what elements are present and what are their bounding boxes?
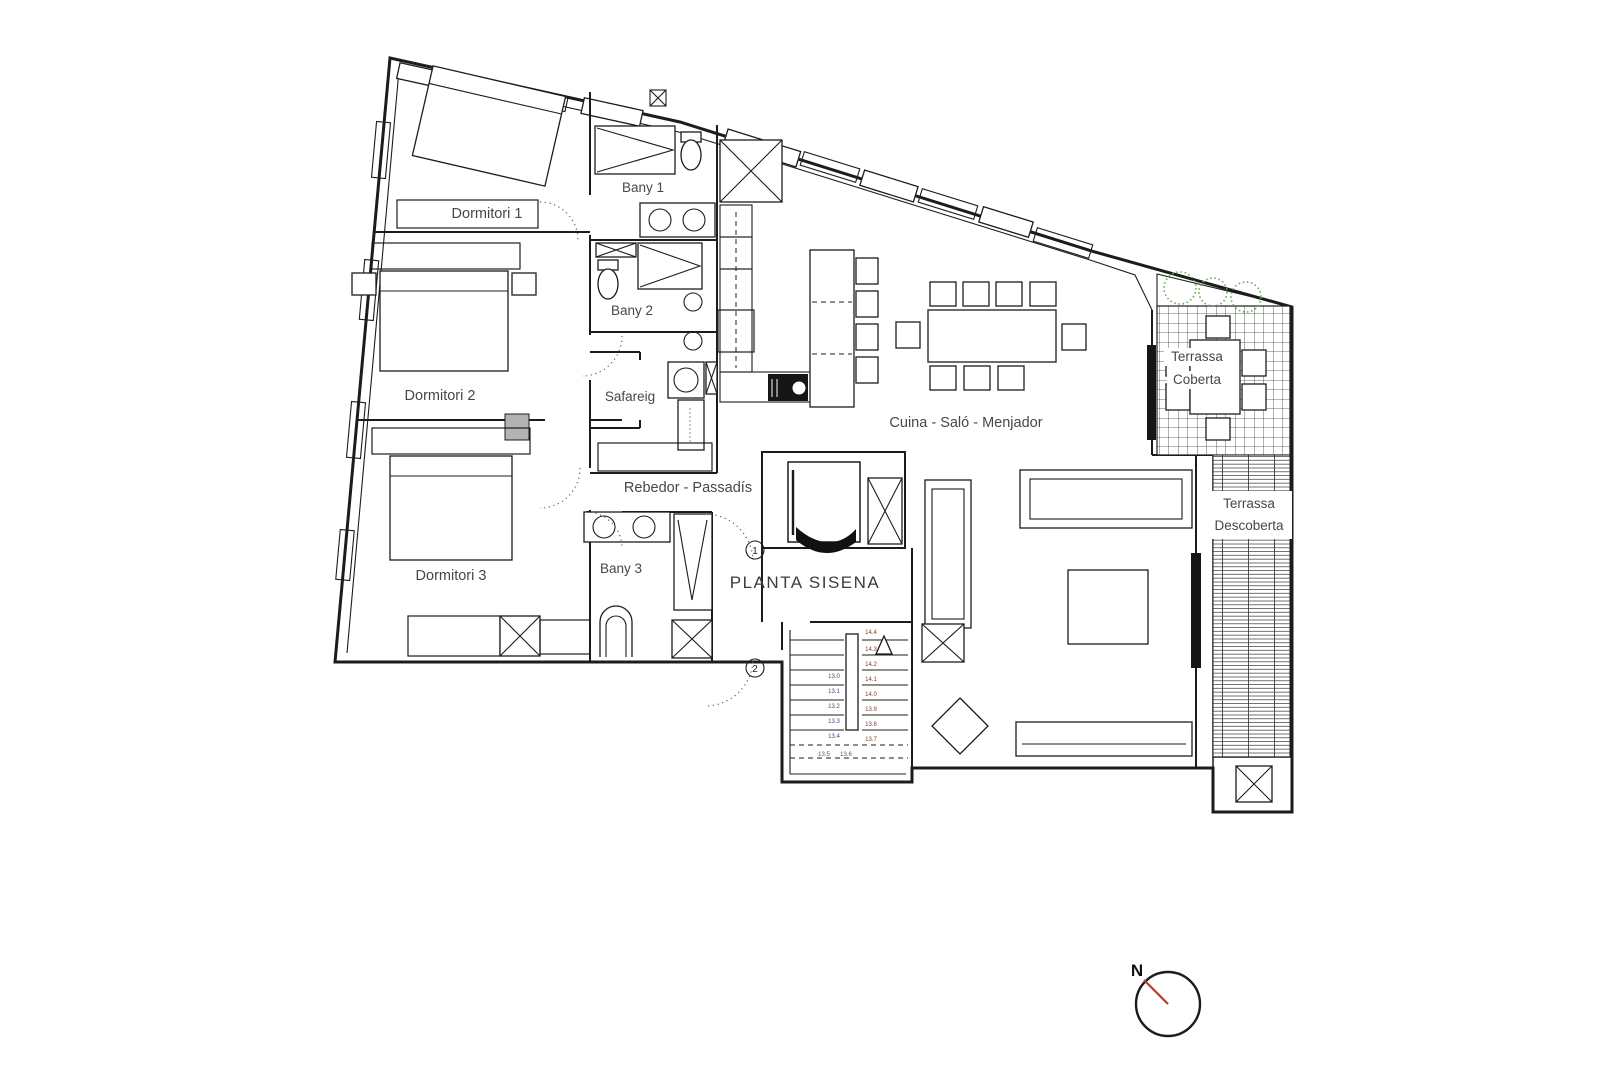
sofa-bottom xyxy=(1016,722,1192,756)
room-bany-1: Bany 1 xyxy=(595,126,782,237)
side-table xyxy=(932,698,988,754)
staircase: 14.4 14.3 14.2 14.1 14.0 13.9 13.8 13.7 … xyxy=(782,622,912,782)
column xyxy=(505,414,529,440)
planter xyxy=(1157,274,1290,306)
terrace-door-1 xyxy=(1147,345,1156,440)
stair-level: 13.6 xyxy=(840,752,852,758)
compass-north-label: N xyxy=(1131,961,1143,980)
shower-2 xyxy=(638,243,702,289)
toilet-3 xyxy=(600,606,632,657)
stair-level: 13.4 xyxy=(828,734,840,740)
bed-3 xyxy=(390,456,512,560)
floor-plan-page: Dormitori 1 Dormitori 2 Dormitori 3 Ba xyxy=(0,0,1600,1066)
label-terrassa-descoberta-1: Terrassa xyxy=(1223,496,1275,511)
stair-level: 13.8 xyxy=(865,722,877,728)
stair-level: 13.3 xyxy=(828,719,840,725)
stair-level: 13.1 xyxy=(828,689,840,695)
terrace-door-2 xyxy=(1191,553,1201,668)
stair-up-arrow xyxy=(876,636,892,654)
washer xyxy=(668,362,704,398)
stair-level: 14.2 xyxy=(865,662,877,668)
label-terrassa-coberta-1: Terrassa xyxy=(1171,349,1223,364)
entrance-2-number: 2 xyxy=(752,664,758,675)
compass-needle xyxy=(1144,980,1168,1004)
stair-level: 13.5 xyxy=(818,752,830,758)
stair-level: 14.3 xyxy=(865,647,877,653)
stair-level: 13.0 xyxy=(828,674,840,680)
terrassa-descoberta: Terrassa Descoberta xyxy=(1207,455,1292,802)
stair-level: 13.9 xyxy=(865,707,877,713)
toilet-2 xyxy=(598,269,618,299)
stair-level: 14.0 xyxy=(865,692,877,698)
shower-1 xyxy=(595,126,675,174)
kitchen xyxy=(718,205,878,407)
entrance-1-number: 1 xyxy=(752,546,758,557)
dining-area: Cuina - Saló - Menjador xyxy=(889,282,1086,431)
label-bany-2: Bany 2 xyxy=(611,303,653,318)
floor-title: PLANTA SISENA xyxy=(730,573,881,592)
vanity-1 xyxy=(640,203,715,237)
room-dormitori-3: Dormitori 3 xyxy=(372,428,590,656)
room-bany-2: Bany 2 xyxy=(596,243,702,350)
label-cuina-salo: Cuina - Saló - Menjador xyxy=(889,415,1042,431)
room-bany-3: Bany 3 xyxy=(584,512,712,658)
wardrobe-2 xyxy=(372,243,520,269)
label-rebedor: Rebedor - Passadís xyxy=(624,480,752,496)
compass-icon: N xyxy=(1131,961,1200,1036)
stair-level: 13.7 xyxy=(865,737,877,743)
toilet-1 xyxy=(681,140,701,170)
floor-plan-svg: Dormitori 1 Dormitori 2 Dormitori 3 Ba xyxy=(0,0,1600,1066)
label-bany-3: Bany 3 xyxy=(600,561,642,576)
label-terrassa-coberta-2: Coberta xyxy=(1173,372,1222,387)
wardrobe-3b xyxy=(408,616,500,656)
bush-icon xyxy=(1199,278,1227,306)
label-dormitori-2: Dormitori 2 xyxy=(405,388,476,404)
label-dormitori-3: Dormitori 3 xyxy=(416,568,487,584)
label-bany-1: Bany 1 xyxy=(622,180,664,195)
room-dormitori-1: Dormitori 1 xyxy=(397,66,566,228)
room-dormitori-2: Dormitori 2 xyxy=(352,243,536,440)
bed-2 xyxy=(380,271,508,371)
stair-level: 14.1 xyxy=(865,677,877,683)
label-safareig: Safareig xyxy=(605,389,655,404)
bed-1 xyxy=(412,66,565,186)
label-terrassa-descoberta-2: Descoberta xyxy=(1214,518,1284,533)
dining-table xyxy=(928,310,1056,362)
elevator xyxy=(762,452,905,553)
island xyxy=(810,250,854,407)
coffee-table xyxy=(1068,570,1148,644)
stair-stringer xyxy=(846,634,858,730)
room-safareig: Safareig xyxy=(590,352,717,471)
stair-level: 13.2 xyxy=(828,704,840,710)
stair-level: 14.4 xyxy=(865,630,877,636)
vanity-3 xyxy=(584,512,670,542)
label-dormitori-1: Dormitori 1 xyxy=(452,206,523,222)
elevator-door xyxy=(796,527,856,553)
